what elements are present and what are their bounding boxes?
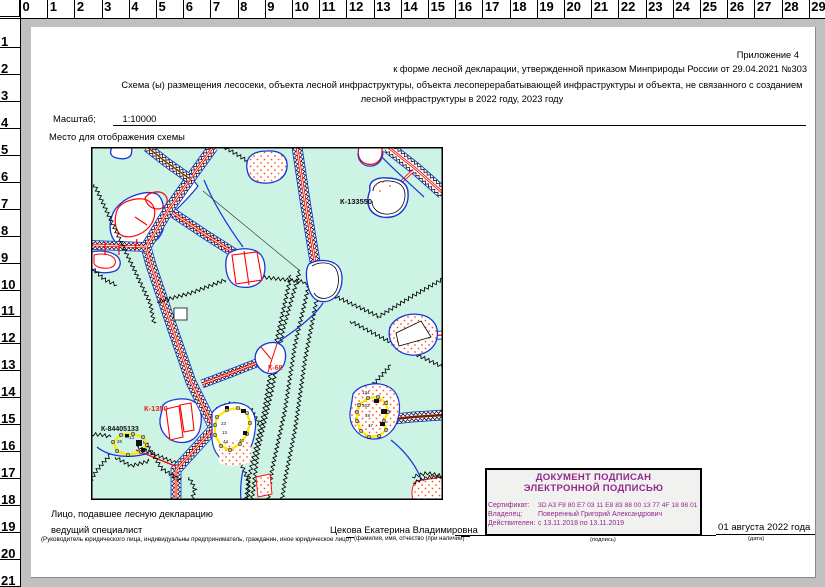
svg-text:17: 17 (368, 423, 374, 428)
svg-text:302: 302 (362, 403, 370, 408)
svg-text:К-84405133: К-84405133 (101, 426, 139, 433)
svg-text:13: 13 (222, 430, 228, 435)
svg-text:К-133550: К-133550 (340, 197, 372, 206)
svg-text:К-1350: К-1350 (144, 404, 168, 413)
svg-text:44: 44 (223, 439, 229, 444)
svg-text:К-68: К-68 (268, 365, 282, 372)
svg-text:23: 23 (221, 421, 227, 426)
svg-text:26: 26 (117, 439, 123, 444)
svg-text:13: 13 (129, 435, 135, 440)
svg-text:19: 19 (365, 413, 371, 418)
svg-text:134: 134 (362, 390, 370, 395)
svg-text:40: 40 (239, 438, 245, 443)
